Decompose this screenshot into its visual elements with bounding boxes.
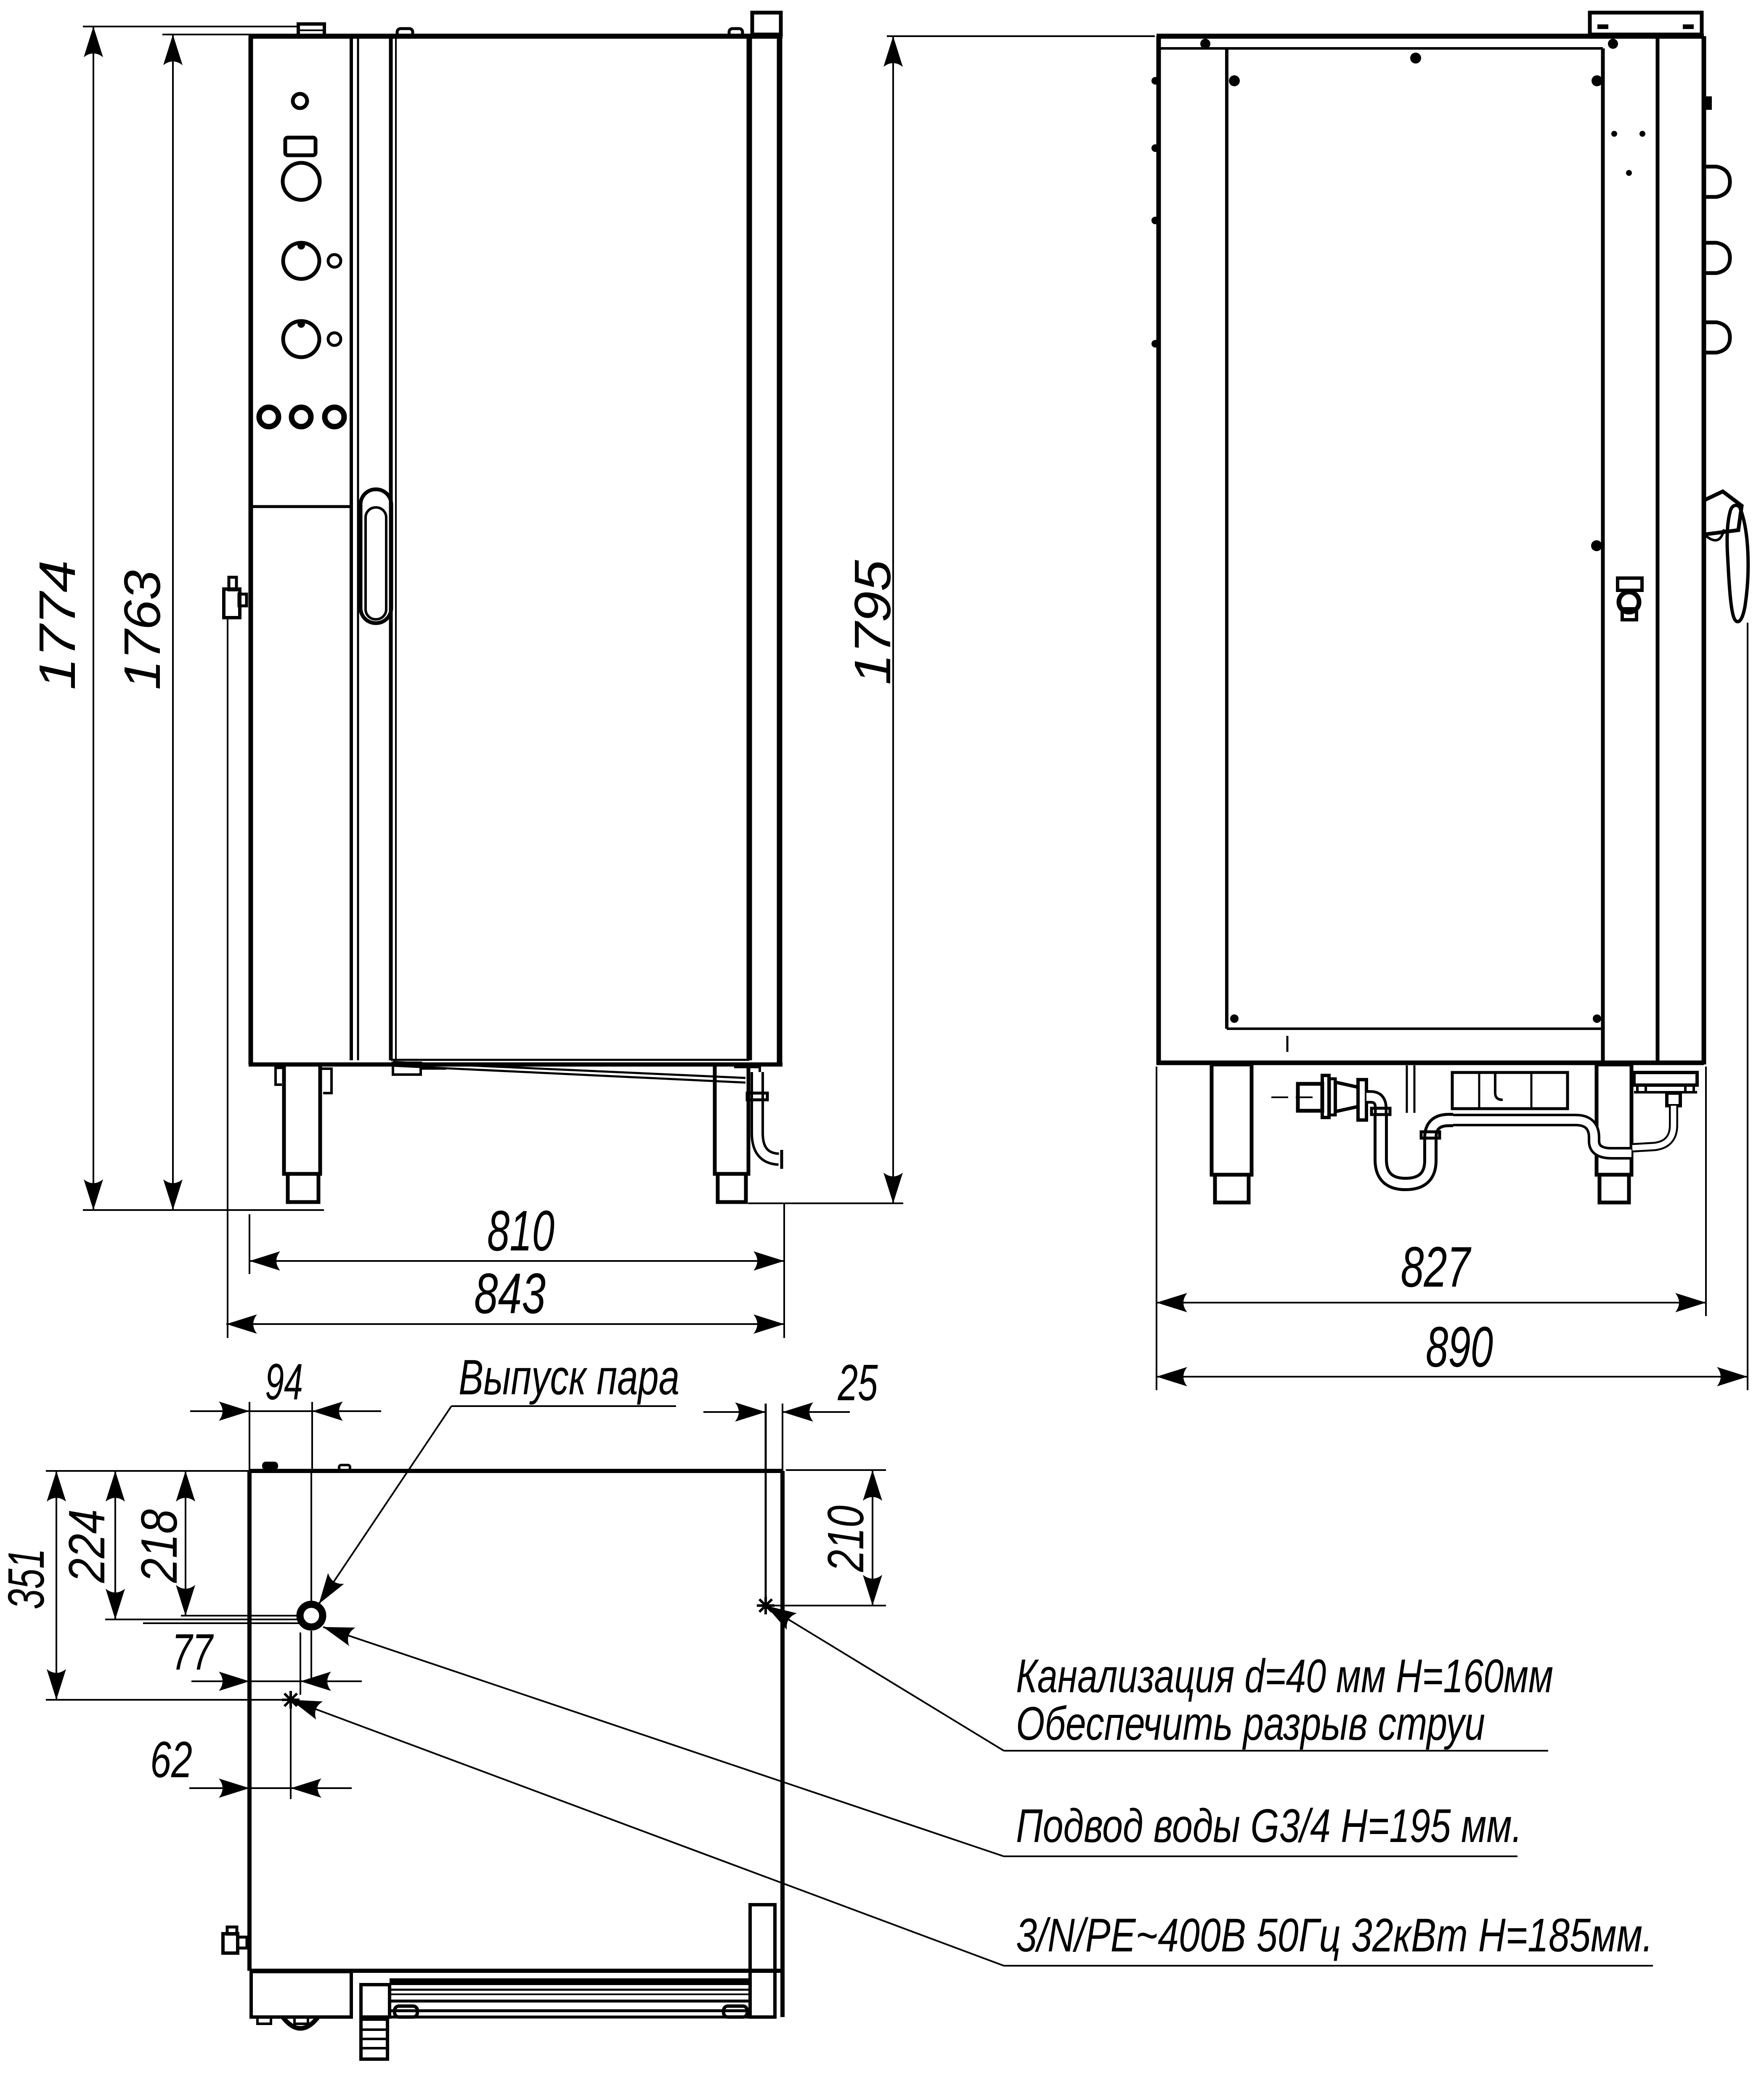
svg-text:Канализация d=40 мм Н=160мм: Канализация d=40 мм Н=160мм <box>1016 1650 1553 1702</box>
svg-text:843: 843 <box>474 1261 546 1325</box>
svg-text:3/N/PE~400В 50Гц 32кВт Н=185мм: 3/N/PE~400В 50Гц 32кВт Н=185мм. <box>1016 1909 1653 1962</box>
svg-text:224: 224 <box>58 1509 115 1583</box>
svg-text:Подвод воды G3/4 Н=195 мм.: Подвод воды G3/4 Н=195 мм. <box>1016 1800 1522 1852</box>
svg-text:1774: 1774 <box>29 560 86 690</box>
svg-text:218: 218 <box>130 1509 188 1583</box>
svg-text:810: 810 <box>487 1199 554 1263</box>
svg-text:210: 210 <box>817 1505 874 1572</box>
svg-text:1795: 1795 <box>844 560 901 685</box>
svg-text:351: 351 <box>0 1548 55 1609</box>
svg-text:1763: 1763 <box>114 570 171 690</box>
svg-text:25: 25 <box>838 1354 878 1411</box>
svg-text:827: 827 <box>1401 1235 1472 1299</box>
svg-text:94: 94 <box>265 1353 303 1410</box>
svg-text:Выпуск пара: Выпуск пара <box>459 1350 679 1405</box>
svg-text:62: 62 <box>150 1731 192 1788</box>
svg-text:890: 890 <box>1426 1315 1493 1379</box>
svg-text:Обеспечить разрыв струи: Обеспечить разрыв струи <box>1016 1697 1485 1750</box>
svg-text:77: 77 <box>172 1623 214 1680</box>
